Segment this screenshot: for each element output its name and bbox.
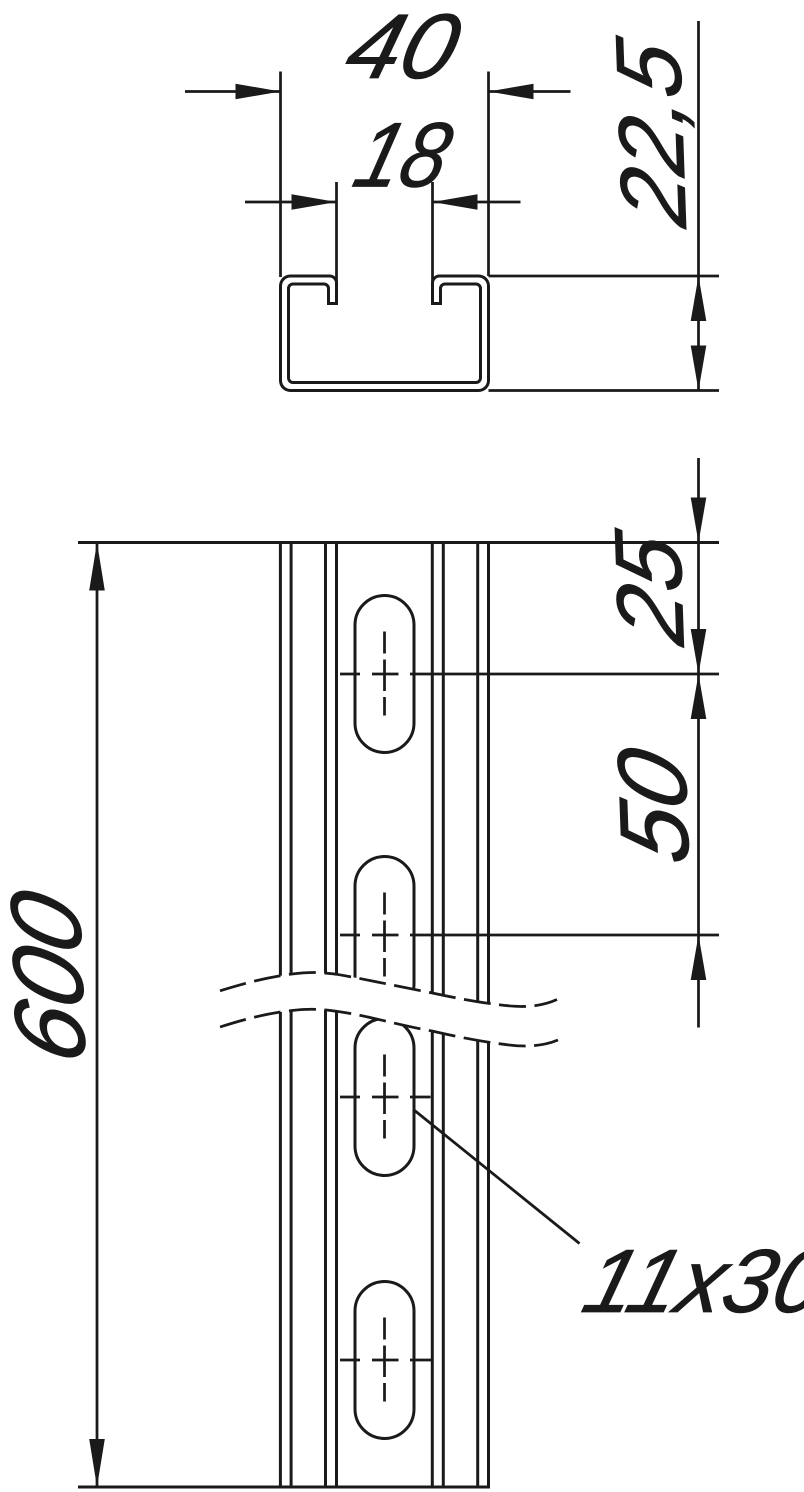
svg-text:600: 600 bbox=[0, 881, 107, 1072]
svg-text:11x30: 11x30 bbox=[574, 1231, 804, 1331]
svg-text:22,5: 22,5 bbox=[596, 30, 706, 235]
